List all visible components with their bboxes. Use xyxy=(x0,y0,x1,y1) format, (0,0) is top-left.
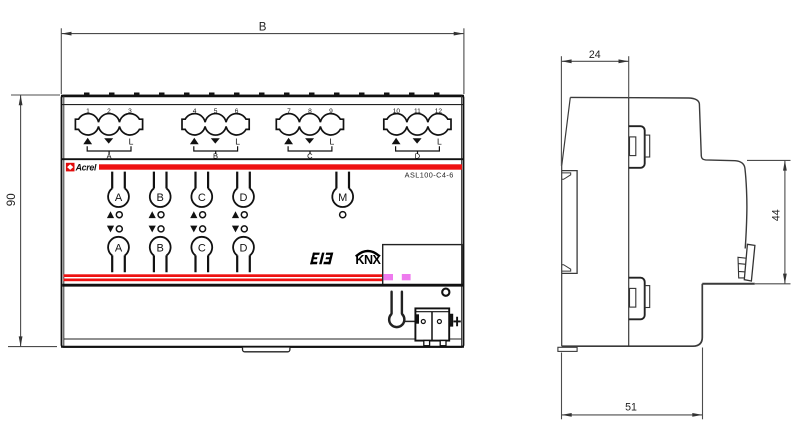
svg-text:D: D xyxy=(415,152,421,161)
svg-text:L: L xyxy=(330,136,335,146)
svg-text:24: 24 xyxy=(589,49,601,61)
svg-text:D: D xyxy=(240,243,248,255)
svg-text:B: B xyxy=(157,192,164,204)
svg-text:L: L xyxy=(437,136,442,146)
svg-text:51: 51 xyxy=(625,401,637,413)
svg-text:90: 90 xyxy=(6,193,18,206)
svg-text:C: C xyxy=(198,192,206,204)
svg-text:KNX: KNX xyxy=(355,253,381,267)
svg-text:M: M xyxy=(338,192,347,204)
svg-text:A: A xyxy=(115,192,123,204)
svg-text:A: A xyxy=(115,243,123,255)
svg-text:Acrel: Acrel xyxy=(75,163,97,173)
svg-text:44: 44 xyxy=(770,209,782,221)
svg-text:C: C xyxy=(307,152,313,161)
svg-text:ASL100-C4-6: ASL100-C4-6 xyxy=(405,171,454,180)
svg-text:B: B xyxy=(259,22,267,34)
svg-text:C: C xyxy=(198,243,206,255)
svg-text:L: L xyxy=(235,136,240,146)
svg-text:B: B xyxy=(213,152,218,161)
svg-text:L: L xyxy=(129,136,134,146)
svg-text:D: D xyxy=(240,192,248,204)
svg-text:B: B xyxy=(157,243,164,255)
